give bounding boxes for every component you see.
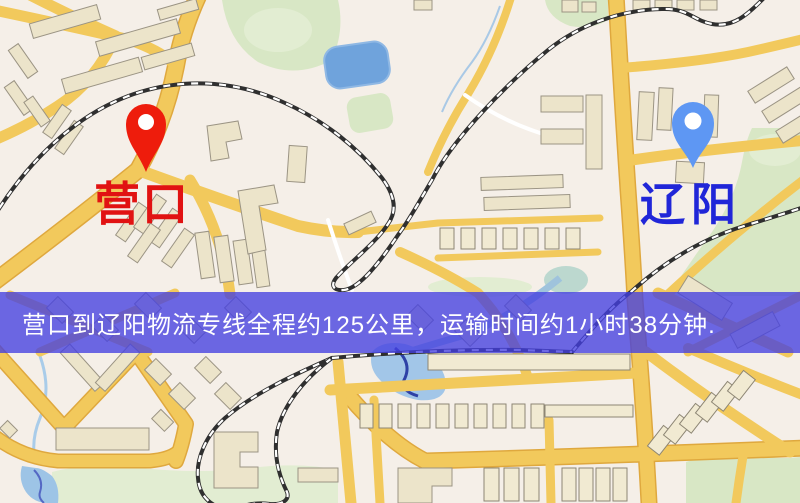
map-screenshot: 营口 辽阳 营口到辽阳物流专线全程约125公里，运输时间约1小时38分钟. [0, 0, 800, 503]
origin-pin-hole [138, 114, 154, 130]
origin-label: 营口 [94, 178, 190, 230]
route-info-text: 营口到辽阳物流专线全程约125公里，运输时间约1小时38分钟. [0, 305, 716, 340]
route-info-banner: 营口到辽阳物流专线全程约125公里，运输时间约1小时38分钟. [0, 292, 800, 353]
map-canvas: 营口 辽阳 [0, 0, 800, 503]
destination-pin-hole [685, 113, 702, 130]
destination-label: 辽阳 [640, 179, 742, 230]
lake [322, 40, 391, 90]
